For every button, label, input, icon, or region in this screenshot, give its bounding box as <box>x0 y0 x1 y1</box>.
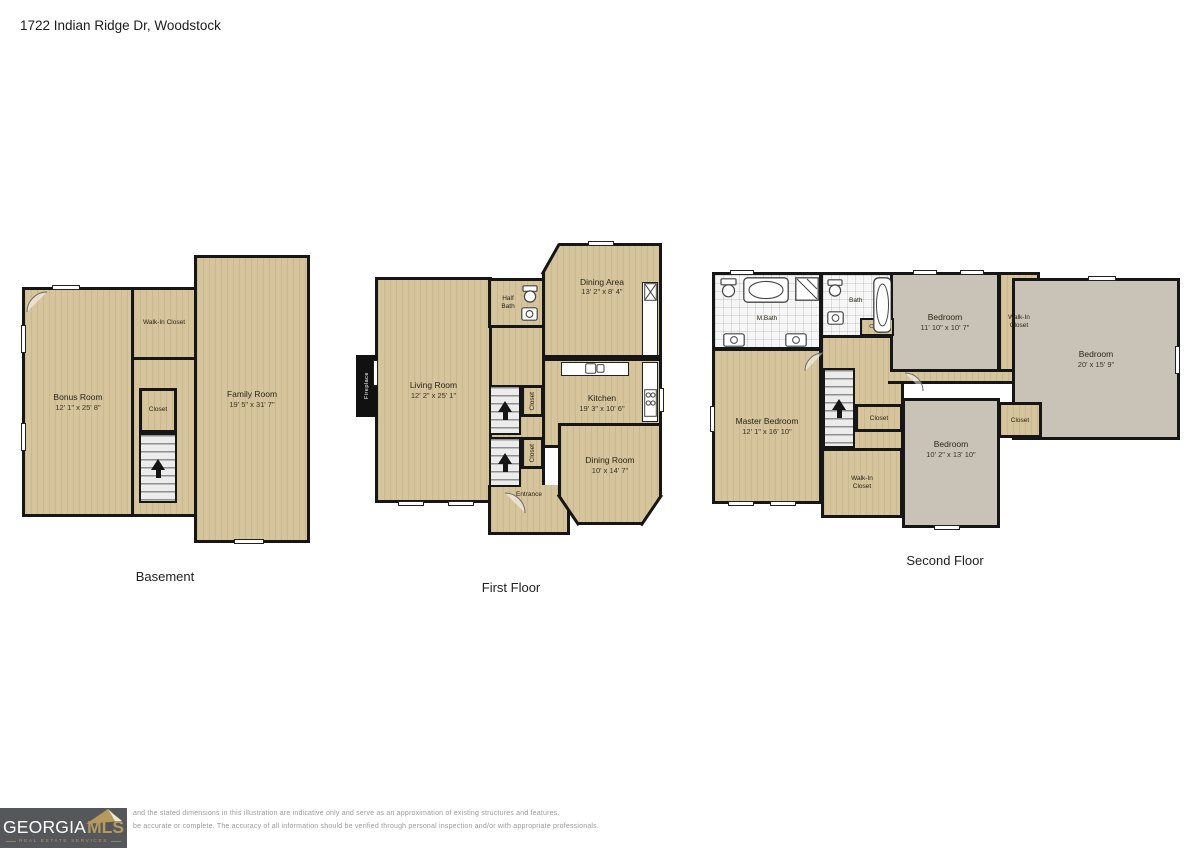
room-dims: 19' 5" x 31' 7" <box>227 400 277 409</box>
door-arc <box>504 492 526 514</box>
room-label: Walk-In Closet <box>142 319 186 327</box>
window <box>588 241 614 246</box>
kitchen-counter <box>642 362 658 422</box>
room-name: Bedroom <box>1078 349 1114 360</box>
room-label: Bedroom 20' x 15' 9" <box>1078 349 1114 369</box>
room-dims: 12' 2" x 25' 1" <box>410 391 457 400</box>
room-name: Closet <box>529 392 536 410</box>
room-closet-upper: Closet <box>521 385 544 417</box>
room-name: Dining Area <box>580 277 624 288</box>
window <box>1175 346 1180 374</box>
room-label: M.Bath <box>757 315 778 323</box>
room-label: Bath <box>849 297 862 305</box>
stairs-up-arrow-icon <box>498 401 512 420</box>
roof-icon <box>86 809 122 824</box>
room-name: Living Room <box>410 380 457 391</box>
room-label: Closet <box>149 406 167 414</box>
room-label: Kitchen 19' 3" x 10' 6" <box>579 393 624 413</box>
room-closet-mid: Closet <box>855 404 903 432</box>
first-floor-label: First Floor <box>441 580 581 595</box>
room-name: Bedroom <box>926 439 975 450</box>
window <box>710 406 715 432</box>
room-master-bath: M.Bath <box>712 272 822 350</box>
room-dims: 19' 3" x 10' 6" <box>579 404 624 413</box>
toilet-icon <box>522 285 538 303</box>
sink-icon <box>785 333 807 347</box>
room-name: Bath <box>849 297 862 305</box>
room-closet: Closet <box>139 388 177 433</box>
sink-icon <box>585 363 605 374</box>
room-name: Closet <box>529 444 536 462</box>
room-walk-in-closet: Walk-In Closet <box>131 287 197 360</box>
room-living-room: Living Room 12' 2" x 25' 1" <box>375 277 492 503</box>
window <box>21 423 26 451</box>
room-name: Master Bedroom <box>736 416 799 427</box>
tagline-rule <box>6 841 16 842</box>
door-arc <box>904 372 924 392</box>
room-name: Walk-In Closet <box>1004 314 1034 330</box>
room-label: Dining Room 10' x 14' 7" <box>585 455 634 475</box>
room-name: Dining Room <box>585 455 634 466</box>
room-label: Family Room 19' 5" x 31' 7" <box>227 389 277 409</box>
tagline-rule <box>111 841 121 842</box>
basement-floor-label: Basement <box>95 569 235 584</box>
room-label: Bedroom 11' 10" x 10' 7" <box>921 312 970 332</box>
window <box>770 501 796 506</box>
window <box>1088 276 1116 281</box>
window <box>52 285 80 290</box>
corner-cabinet-icon <box>644 283 657 301</box>
room-name: Bonus Room <box>53 392 102 403</box>
room-name: Closet <box>870 415 888 422</box>
stairs-up-arrow-icon <box>151 459 165 478</box>
sink-icon <box>827 311 844 325</box>
room-name: Family Room <box>227 389 277 400</box>
second-floor-stairs <box>823 368 855 448</box>
georgia-mls-logo: GEORGIAMLS REAL ESTATE SERVICES <box>0 808 127 848</box>
window <box>373 360 378 386</box>
window <box>728 501 754 506</box>
room-name: M.Bath <box>757 315 778 323</box>
stairs-up-arrow-icon <box>832 399 846 418</box>
room-dims: 12' 1" x 16' 10" <box>736 427 799 436</box>
sink-icon <box>521 307 538 321</box>
room-bath: Bath <box>820 272 894 338</box>
disclaimer-line-1: and the stated dimensions in this illust… <box>133 810 560 817</box>
room-label: Master Bedroom 12' 1" x 16' 10" <box>736 416 799 436</box>
kitchen-counter <box>642 282 658 358</box>
disclaimer-line-2: be accurate or complete. The accuracy of… <box>133 823 599 830</box>
room-bedroom-bottom: Bedroom 10' 2" x 13' 10" <box>902 398 1000 528</box>
stove-icon <box>644 389 657 417</box>
door-arc <box>26 291 48 313</box>
room-label: Walk-In Closet <box>842 475 882 491</box>
room-name: Closet <box>149 406 167 414</box>
bathtub-icon <box>873 277 892 333</box>
room-dims: 11' 10" x 10' 7" <box>921 323 970 332</box>
room-name: Bedroom <box>921 312 970 323</box>
window <box>934 525 960 530</box>
room-label: Walk-In Closet <box>1004 314 1034 330</box>
floorplan-sheet: 1722 Indian Ridge Dr, Woodstock Family R… <box>0 0 1200 848</box>
logo-text-georgia: GEORGIA <box>3 819 86 837</box>
kitchen-island <box>561 362 629 376</box>
page-title: 1722 Indian Ridge Dr, Woodstock <box>20 18 221 33</box>
door-arc <box>804 352 824 372</box>
window <box>730 270 754 275</box>
room-dims: 13' 2" x 8' 4" <box>580 287 624 296</box>
entrance-hall: Entrance <box>488 485 570 535</box>
tagline-text: REAL ESTATE SERVICES <box>19 839 108 844</box>
second-floor-floorplan: M.Bath Bath Bedroom 11' 10" x 10' 7" Wal <box>708 268 1182 530</box>
bathtub-icon <box>743 277 789 303</box>
toilet-icon <box>827 279 843 297</box>
second-floor-label: Second Floor <box>875 553 1015 568</box>
room-family-room: Family Room 19' 5" x 31' 7" <box>194 255 310 543</box>
basement-floorplan: Family Room 19' 5" x 31' 7" Bonus Room 1… <box>22 255 312 547</box>
room-dims: 12' 1" x 25' 8" <box>53 403 102 412</box>
room-dining-room: Dining Room 10' x 14' 7" <box>558 423 662 525</box>
logo-tagline: REAL ESTATE SERVICES <box>6 839 121 844</box>
room-label: Dining Area 13' 2" x 8' 4" <box>580 277 624 297</box>
room-dims: 10' x 14' 7" <box>585 466 634 475</box>
room-name: Closet <box>1011 417 1029 424</box>
sink-icon <box>723 333 745 347</box>
window <box>234 539 264 544</box>
room-walk-in-closet-bottom: Walk-In Closet <box>821 448 903 518</box>
shower-icon <box>795 277 819 301</box>
first-floor-stairs-upper <box>489 385 521 435</box>
room-dims: 20' x 15' 9" <box>1078 360 1114 369</box>
room-dining-area: Dining Area 13' 2" x 8' 4" <box>542 243 662 358</box>
toilet-icon <box>720 278 737 298</box>
room-label: Living Room 12' 2" x 25' 1" <box>410 380 457 400</box>
room-label: Bedroom 10' 2" x 13' 10" <box>926 439 975 459</box>
room-half-bath: Half Bath <box>488 278 545 328</box>
first-floor-floorplan: Living Room 12' 2" x 25' 1" Half Bath Di… <box>356 240 668 560</box>
window <box>448 501 474 506</box>
room-label: Bonus Room 12' 1" x 25' 8" <box>53 392 102 412</box>
room-name: Kitchen <box>579 393 624 404</box>
window <box>659 388 664 412</box>
room-closet-lower: Closet <box>521 437 544 469</box>
window <box>398 501 424 506</box>
window <box>21 325 26 353</box>
window <box>913 270 937 275</box>
fireplace-label: Fireplace <box>364 372 370 399</box>
basement-stairs <box>139 433 177 503</box>
room-closet-right: Closet <box>998 402 1042 438</box>
first-floor-stairs-lower <box>489 437 521 487</box>
room-label: Half Bath <box>495 295 521 311</box>
room-dims: 10' 2" x 13' 10" <box>926 450 975 459</box>
stairs-up-arrow-icon <box>498 453 512 472</box>
room-name: Walk-In Closet <box>842 475 882 491</box>
window <box>960 270 984 275</box>
room-bonus-room: Bonus Room 12' 1" x 25' 8" <box>22 287 134 517</box>
room-bedroom-top: Bedroom 11' 10" x 10' 7" <box>890 272 1000 372</box>
room-name: Half Bath <box>495 295 521 311</box>
room-name: Walk-In Closet <box>142 319 186 327</box>
